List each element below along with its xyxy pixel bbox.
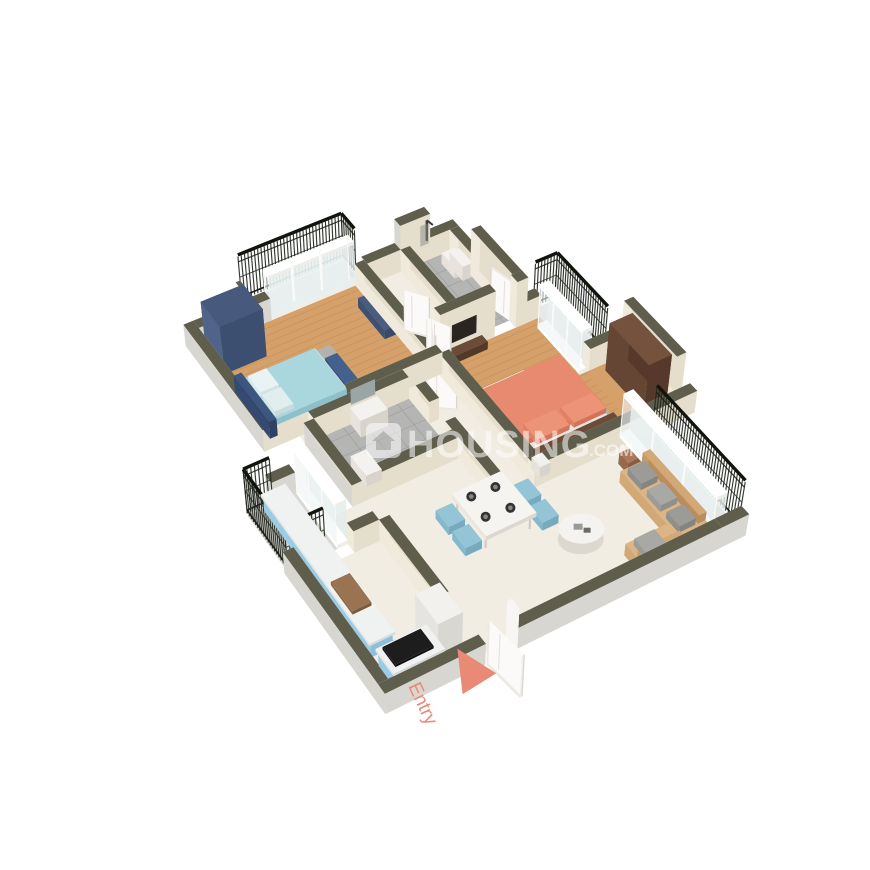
svg-text:.COM: .COM [589, 441, 633, 460]
svg-text:HOUSING: HOUSING [407, 424, 591, 466]
